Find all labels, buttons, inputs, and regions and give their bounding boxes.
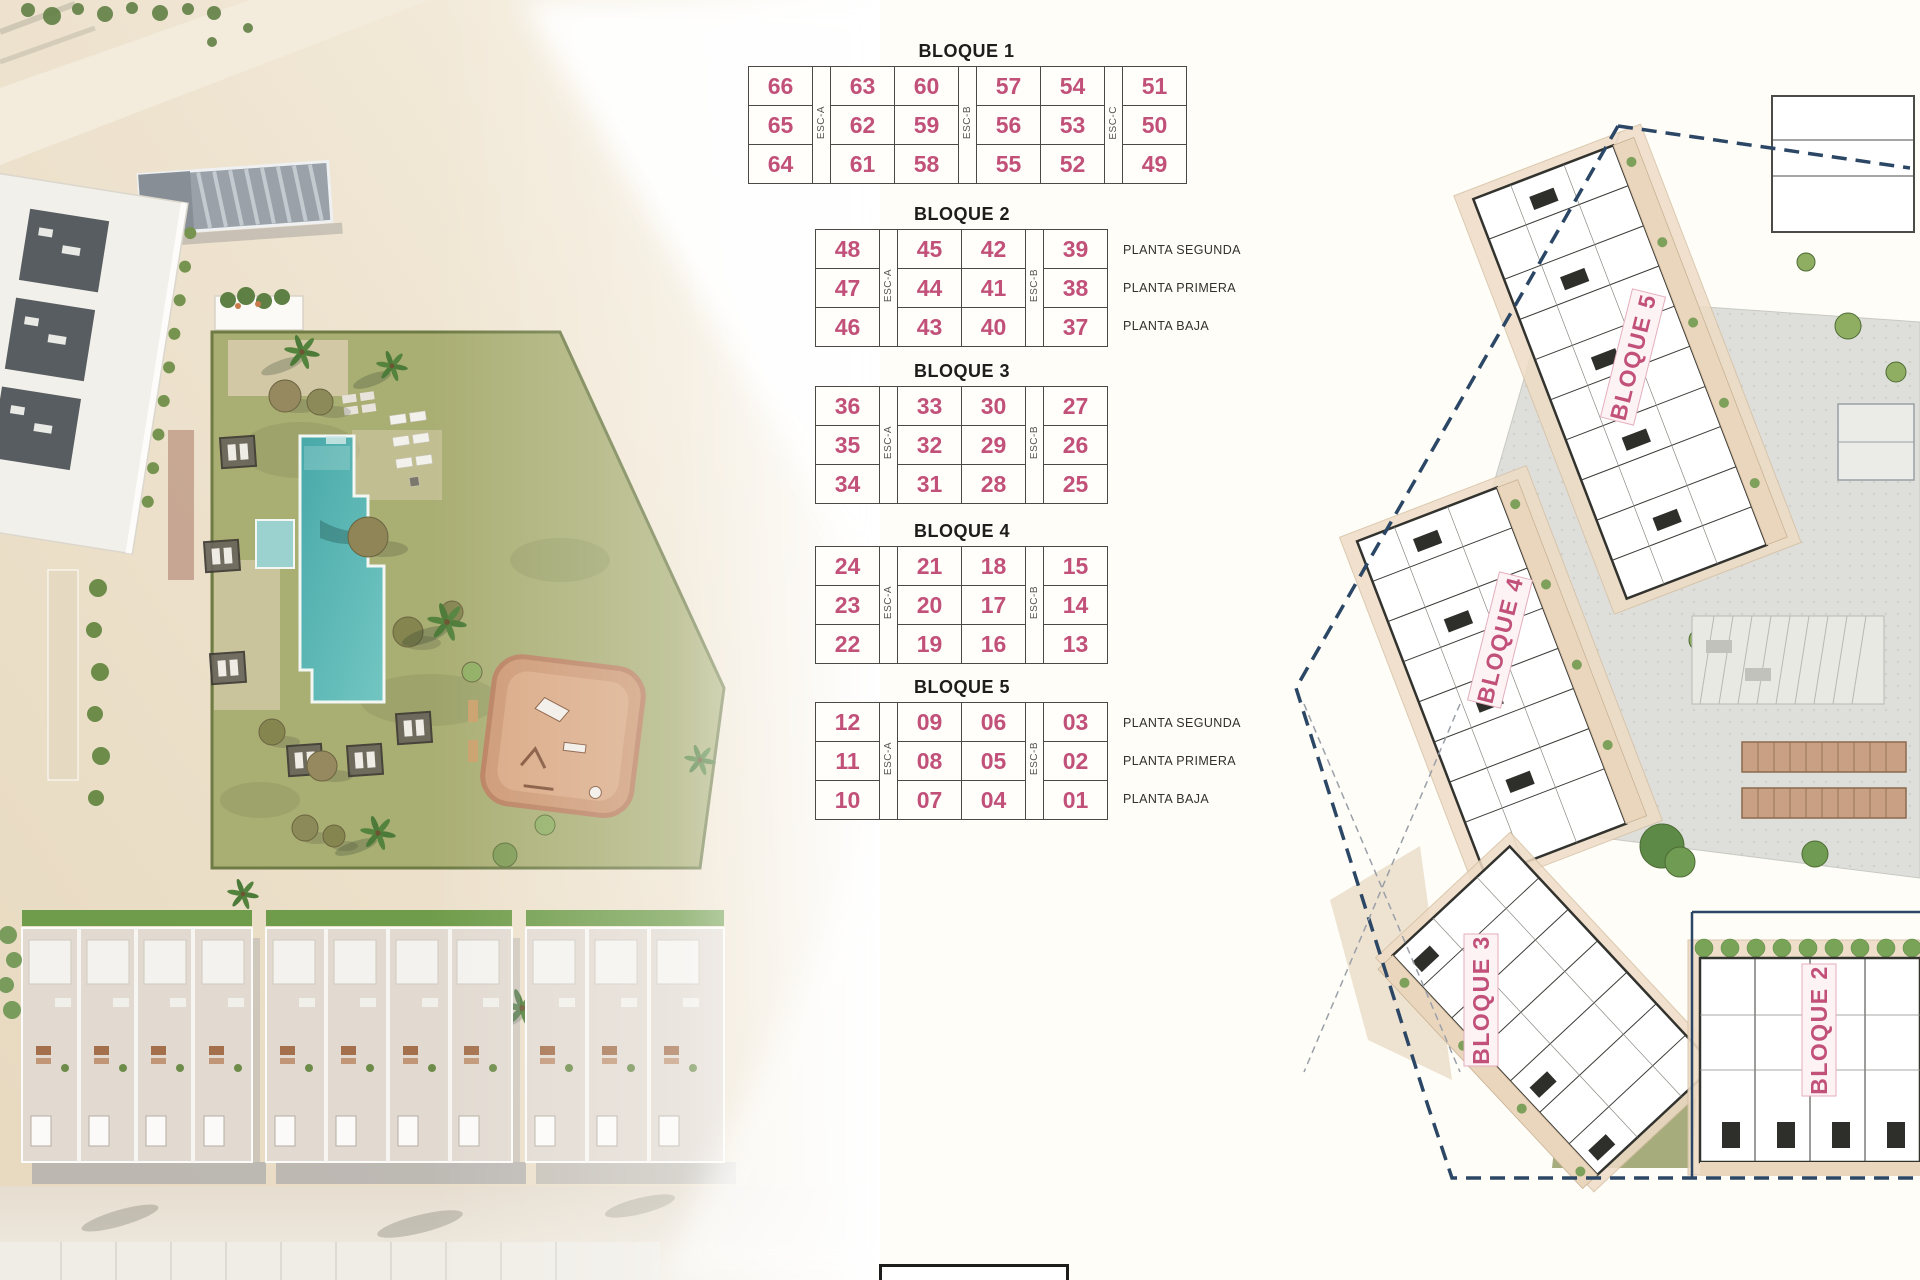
unit-cell-10: 10 bbox=[816, 781, 880, 820]
unit-cell-08: 08 bbox=[898, 742, 962, 781]
unit-cell-42: 42 bbox=[962, 230, 1026, 269]
svg-text:BLOQUE 3: BLOQUE 3 bbox=[1468, 935, 1494, 1065]
stairwell-label: ESC-A bbox=[816, 106, 827, 139]
stairwell-cell: ESC-A bbox=[880, 230, 898, 347]
unit-cell-41: 41 bbox=[962, 269, 1026, 308]
unit-cell-65: 65 bbox=[749, 106, 813, 145]
unit-cell-66: 66 bbox=[749, 67, 813, 106]
unit-cell-43: 43 bbox=[898, 308, 962, 347]
unit-cell-33: 33 bbox=[898, 387, 962, 426]
unit-cell-45: 45 bbox=[898, 230, 962, 269]
unit-cell-11: 11 bbox=[816, 742, 880, 781]
site-plan: BLOQUE 5 BLOQUE 4 BLOQUE 3 BLOQUE 2 bbox=[1030, 0, 1920, 1280]
unit-cell-48: 48 bbox=[816, 230, 880, 269]
unit-cell-28: 28 bbox=[962, 465, 1026, 504]
stairwell-cell: ESC-A bbox=[813, 67, 831, 184]
unit-cell-46: 46 bbox=[816, 308, 880, 347]
unit-cell-31: 31 bbox=[898, 465, 962, 504]
stairwell-label: ESC-A bbox=[883, 426, 894, 459]
stairwell-cell: ESC-B bbox=[959, 67, 977, 184]
unit-cell-62: 62 bbox=[831, 106, 895, 145]
unit-cell-06: 06 bbox=[962, 703, 1026, 742]
unit-cell-17: 17 bbox=[962, 586, 1026, 625]
svg-text:BLOQUE 2: BLOQUE 2 bbox=[1806, 965, 1832, 1095]
unit-cell-16: 16 bbox=[962, 625, 1026, 664]
unit-cell-04: 04 bbox=[962, 781, 1026, 820]
unit-cell-34: 34 bbox=[816, 465, 880, 504]
stairwell-label: ESC-A bbox=[883, 742, 894, 775]
unit-cell-20: 20 bbox=[898, 586, 962, 625]
stairwell-cell: ESC-A bbox=[880, 703, 898, 820]
stairwell-cell: ESC-A bbox=[880, 387, 898, 504]
unit-cell-12: 12 bbox=[816, 703, 880, 742]
unit-cell-47: 47 bbox=[816, 269, 880, 308]
unit-cell-32: 32 bbox=[898, 426, 962, 465]
unit-cell-05: 05 bbox=[962, 742, 1026, 781]
unit-cell-30: 30 bbox=[962, 387, 1026, 426]
unit-cell-35: 35 bbox=[816, 426, 880, 465]
unit-cell-19: 19 bbox=[898, 625, 962, 664]
unit-cell-07: 07 bbox=[898, 781, 962, 820]
legend-box bbox=[879, 1264, 1069, 1280]
unit-cell-61: 61 bbox=[831, 145, 895, 184]
unit-cell-36: 36 bbox=[816, 387, 880, 426]
unit-cell-21: 21 bbox=[898, 547, 962, 586]
unit-cell-18: 18 bbox=[962, 547, 1026, 586]
stairwell-label: ESC-B bbox=[962, 106, 973, 139]
bloque-3-label: BLOQUE 3 bbox=[1464, 934, 1498, 1066]
stairwell-label: ESC-A bbox=[883, 269, 894, 302]
unit-cell-58: 58 bbox=[895, 145, 959, 184]
brochure-page: BLOQUE 166ESC-A6360ESC-B5754ESC-C5165625… bbox=[0, 0, 1920, 1280]
unit-cell-23: 23 bbox=[816, 586, 880, 625]
unit-cell-22: 22 bbox=[816, 625, 880, 664]
unit-cell-24: 24 bbox=[816, 547, 880, 586]
bloque-2-label: BLOQUE 2 bbox=[1802, 964, 1836, 1096]
unit-cell-29: 29 bbox=[962, 426, 1026, 465]
unit-cell-60: 60 bbox=[895, 67, 959, 106]
stairwell-label: ESC-A bbox=[883, 586, 894, 619]
unit-cell-09: 09 bbox=[898, 703, 962, 742]
unit-cell-63: 63 bbox=[831, 67, 895, 106]
unit-cell-44: 44 bbox=[898, 269, 962, 308]
unit-cell-59: 59 bbox=[895, 106, 959, 145]
unit-cell-40: 40 bbox=[962, 308, 1026, 347]
stairwell-cell: ESC-A bbox=[880, 547, 898, 664]
unit-cell-64: 64 bbox=[749, 145, 813, 184]
